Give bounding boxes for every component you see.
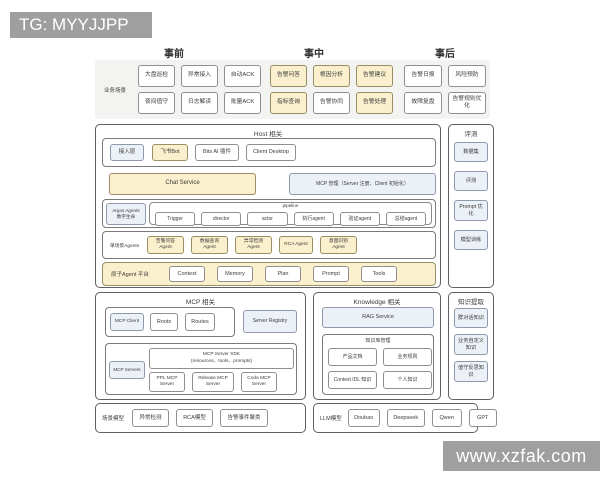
llm-models-label: LLM模型 [320,414,342,422]
access-item-box: Client Desktop [246,144,296,161]
atomic-platform-label: 原子Agent 平台 [111,270,169,278]
evaluation-box: Prompt 优化 [454,200,488,221]
knowledge-box: 产品文档 [328,348,377,366]
llm-model-box: Deepseek [387,409,425,427]
mcp-servers-container: MCP Servers MCP Server SDK (resources、to… [105,343,297,395]
knowledge-box: Context IDL 知识 [328,371,377,389]
evaluation-box: 数据集 [454,142,488,162]
mcp-client-items: RootsRoutes [150,313,215,331]
scenario-box: 大盘巡检 [138,65,175,87]
agent-box: 数据查询Agent [191,236,228,254]
knowledge-section: Knowledge 相关 RAG Service 知识库管理 产品文档业务规则C… [313,292,441,400]
atomic-items: ContextMemoryPlanPromptTools [169,266,397,282]
agent-box: 告警问答Agent [147,236,184,254]
server-registry-box: Server Registry [243,310,297,333]
mcp-server-items: PPL MCP ServerRelease MCP ServerCode MCP… [149,372,277,392]
knowledge-extraction-section: 知识提取 群对话知识业务自定义知识值守反思知识 [448,292,494,400]
scenario-box: 告警问答 [270,65,307,87]
phase-header-post: 事后 [435,45,455,60]
pipeline-stages: Triggerdirectoractor执行agent验证agent总结agen… [155,212,426,226]
argos-agents-label: Argos Agents 数字生命 [106,203,146,225]
argos-agents-label-line2: 数字生命 [117,214,135,220]
pipeline-stage-box: 执行agent [294,212,334,226]
mcp-server-box: Release MCP Server [192,372,234,392]
scene-model-box: 异常检测 [132,409,169,427]
knowledge-extraction-title: 知识提取 [449,296,493,306]
single-agents-label: 单场景Agents [108,242,141,249]
agents-pipeline-row: Argos Agents 数字生命 pipeline Triggerdirect… [102,199,436,228]
host-section-title: Host 相关 [96,128,440,138]
scenario-box: 告警建议 [356,65,393,87]
mcp-client-label: MCP Client [110,313,144,331]
host-section: Host 相关 接入层 飞书BotBits AI 插件Client Deskto… [95,124,441,288]
llm-model-box: Qwen [432,409,462,427]
scene-model-box: 告警事件聚类 [220,409,268,427]
scenario-box: 根因分析 [313,65,350,87]
scenario-box: 故障复盘 [404,92,442,114]
mcp-client-box: Roots [150,313,178,331]
scenario-box: 批量ACK [224,92,261,114]
knowledge-base-container: 知识库管理 产品文档业务规则Context IDL 知识个人知识 [322,334,434,395]
evaluation-section: 评测 数据集评测Prompt 优化模型训练 [448,124,494,288]
evaluation-box: 模型训练 [454,230,488,250]
single-agents-row: 单场景Agents 告警问答Agent数据查询Agent异常检测AgentRCA… [102,231,436,259]
scenario-box: 风险预防 [448,65,486,87]
access-item-box: Bits AI 插件 [195,144,239,161]
llm-model-items: DoubaoDeepseekQwenGPT [348,409,497,427]
atomic-capability-box: Memory [217,266,253,282]
atomic-capability-box: Plan [265,266,301,282]
scenario-box: 日志解读 [181,92,218,114]
atomic-capability-box: Tools [361,266,397,282]
watermark-telegram: TG: MYYJJPP [10,12,152,38]
agent-box: 意图识别Agent [320,236,357,254]
watermark-site: www.xzfak.com [443,441,600,471]
scenario-box: 自动ACK [224,65,261,87]
evaluation-title: 评测 [449,128,493,138]
phase-header-mid: 事中 [304,45,324,60]
scenario-box: 告警处理 [356,92,393,114]
access-item-box: 飞书Bot [152,144,188,161]
atomic-platform-row: 原子Agent 平台 ContextMemoryPlanPromptTools [102,262,436,286]
pipeline-stage-box: 总结agent [386,212,426,226]
scenarios-post-group: 告警日报风险预防故障复盘告警规则优化 [404,65,486,114]
mcp-server-box: PPL MCP Server [149,372,185,392]
llm-model-box: Doubao [348,409,380,427]
access-items: 飞书BotBits AI 插件Client Desktop [152,144,296,161]
pipeline-title: pipeline [150,203,431,208]
pipeline-stage-box: 验证agent [340,212,380,226]
scenario-box: 夜间值守 [138,92,175,114]
access-layer-row: 接入层 飞书BotBits AI 插件Client Desktop [102,138,436,167]
agent-box: 异常检测Agent [235,236,272,254]
mcp-management-box: MCP 管理（Server 注册、Client 初始化） [289,173,436,195]
agent-box: RCA Agent [279,236,313,254]
diagram-page: TG: MYYJJPP 事前 事中 事后 业务场景 大盘巡检异常接入自动ACK夜… [0,0,600,480]
mcp-client-box: Routes [185,313,215,331]
scenarios-label: 业务场景 [104,86,133,94]
scenario-box: 指标查询 [270,92,307,114]
mcp-server-box: Code MCP Server [241,372,277,392]
scene-models-section: 场景模型 异常检测RCA模型告警事件聚类 [95,403,306,433]
scenarios-mid-group: 告警问答根因分析告警建议指标查询告警协同告警处理 [270,65,393,114]
mcp-client-row: MCP Client RootsRoutes [105,307,235,337]
llm-models-section: LLM模型 DoubaoDeepseekQwenGPT [313,403,478,433]
scenario-box: 异常接入 [181,65,218,87]
llm-model-box: GPT [469,409,497,427]
scene-model-box: RCA模型 [176,409,213,427]
pipeline-stage-box: Trigger [155,212,195,226]
phase-header-pre: 事前 [164,45,184,60]
atomic-capability-box: Prompt [313,266,349,282]
business-scenarios-band: 业务场景 大盘巡检异常接入自动ACK夜间值守日志解读批量ACK 告警问答根因分析… [95,60,490,119]
mcp-server-sdk-box: MCP Server SDK (resources、tools、prompts) [149,348,294,369]
pipeline-stage-box: director [201,212,241,226]
mcp-servers-label: MCP Servers [109,361,145,379]
knowledge-box: 个人知识 [383,371,432,389]
sdk-line2: (resources、tools、prompts) [191,359,252,365]
knowledge-base-items: 产品文档业务规则Context IDL 知识个人知识 [328,348,432,389]
scenario-box: 告警协同 [313,92,350,114]
scenarios-pre-group: 大盘巡检异常接入自动ACK夜间值守日志解读批量ACK [138,65,261,114]
pipeline-container: pipeline Triggerdirectoractor执行agent验证ag… [149,202,432,225]
atomic-capability-box: Context [169,266,205,282]
single-agent-items: 告警问答Agent数据查询Agent异常检测AgentRCA Agent意图识别… [147,236,357,254]
access-layer-label: 接入层 [110,144,144,161]
knowledge-base-title: 知识库管理 [323,337,433,344]
scene-model-items: 异常检测RCA模型告警事件聚类 [132,409,268,427]
mcp-section: MCP 相关 MCP Client RootsRoutes Server Reg… [95,292,306,400]
pipeline-stage-box: actor [247,212,287,226]
evaluation-items: 数据集评测Prompt 优化模型训练 [449,125,493,250]
extraction-box: 业务自定义知识 [454,334,488,355]
scene-models-label: 场景模型 [102,414,124,422]
extraction-items: 群对话知识业务自定义知识值守反思知识 [449,293,493,382]
rag-service-box: RAG Service [322,307,434,328]
knowledge-section-title: Knowledge 相关 [314,296,440,306]
evaluation-box: 评测 [454,171,488,191]
chat-service-box: Chat Service [109,173,256,195]
scenario-box: 告警日报 [404,65,442,87]
extraction-box: 群对话知识 [454,308,488,328]
mcp-section-title: MCP 相关 [96,296,305,306]
extraction-box: 值守反思知识 [454,361,488,382]
knowledge-box: 业务规则 [383,348,432,366]
scenario-box: 告警规则优化 [448,92,486,114]
